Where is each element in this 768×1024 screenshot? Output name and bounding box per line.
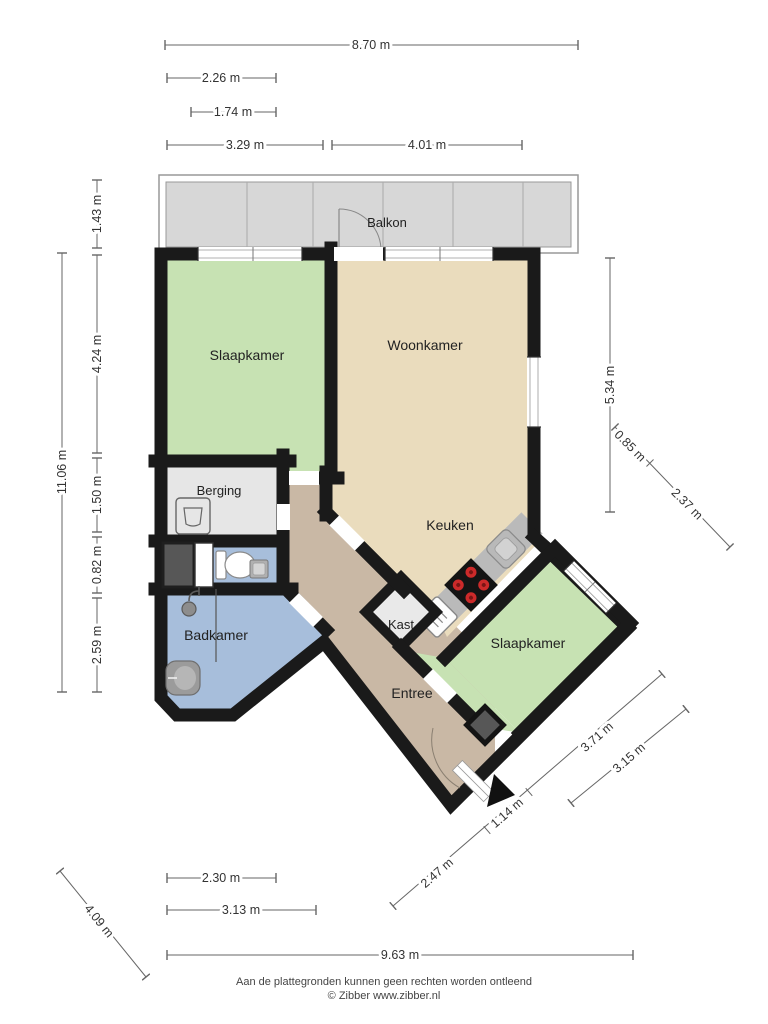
label-bedroom2: Slaapkamer xyxy=(491,635,566,651)
dim-top-a: 2.26 m xyxy=(202,71,240,85)
label-kitchen: Keuken xyxy=(426,517,473,533)
label-storage: Berging xyxy=(197,483,242,498)
footer-disclaimer: Aan de plattegronden kunnen geen rechten… xyxy=(236,976,532,988)
dim-se-d: 3.15 m xyxy=(610,740,648,776)
toilet-door-leaf xyxy=(195,543,213,587)
dim-se-c: 3.71 m xyxy=(578,719,616,755)
label-closet: Kast xyxy=(388,617,414,632)
dim-top-d: 4.01 m xyxy=(408,138,446,152)
dim-left-b: 4.24 m xyxy=(90,335,104,373)
footer-copyright: © Zibber www.zibber.nl xyxy=(328,990,441,1002)
window-bedroom1 xyxy=(198,247,302,261)
dim-left-e: 2.59 m xyxy=(90,626,104,664)
label-hall: Entree xyxy=(391,685,432,701)
dim-left-c: 1.50 m xyxy=(90,476,104,514)
dim-left-total: 11.06 m xyxy=(55,450,69,494)
dim-bottom-b: 3.13 m xyxy=(222,903,260,917)
label-living: Woonkamer xyxy=(387,337,463,353)
dim-top-total: 8.70 m xyxy=(352,38,390,52)
opening-storage xyxy=(277,504,290,530)
dim-right-c: 2.37 m xyxy=(669,486,706,523)
dim-sw-diag: 4.09 m xyxy=(82,902,117,941)
balcony xyxy=(159,175,578,253)
dim-top-c: 3.29 m xyxy=(226,138,264,152)
shaft-left xyxy=(163,543,194,587)
dim-left-a: 1.43 m xyxy=(90,195,104,233)
opening-bedroom1-hall xyxy=(289,471,319,485)
dim-se-a: 2.47 m xyxy=(418,855,456,891)
label-bathroom: Badkamer xyxy=(184,627,248,643)
dim-right-a: 5.34 m xyxy=(603,366,617,404)
dim-top-b: 1.74 m xyxy=(214,105,252,119)
washing-machine-icon xyxy=(176,498,210,534)
floor-plan-svg: Balkon Slaapkamer Woonkamer Berging Keuk… xyxy=(0,0,768,1024)
hand-sink-icon xyxy=(250,560,268,578)
label-balcony: Balkon xyxy=(367,215,407,230)
room-bedroom1-fill xyxy=(161,254,331,485)
washbasin-icon xyxy=(166,661,200,695)
door-balcony-opening xyxy=(334,247,383,261)
toilet-icon xyxy=(216,551,255,579)
dim-right-b: 0.85 m xyxy=(612,428,649,465)
window-living xyxy=(385,247,493,261)
label-bedroom1: Slaapkamer xyxy=(210,347,285,363)
dim-bottom-total: 9.63 m xyxy=(381,948,419,962)
dim-bottom-a: 2.30 m xyxy=(202,871,240,885)
window-living-right xyxy=(527,357,541,427)
dim-left-d: 0.82 m xyxy=(90,546,104,584)
floor-plan-page: Balkon Slaapkamer Woonkamer Berging Keuk… xyxy=(0,0,768,1024)
